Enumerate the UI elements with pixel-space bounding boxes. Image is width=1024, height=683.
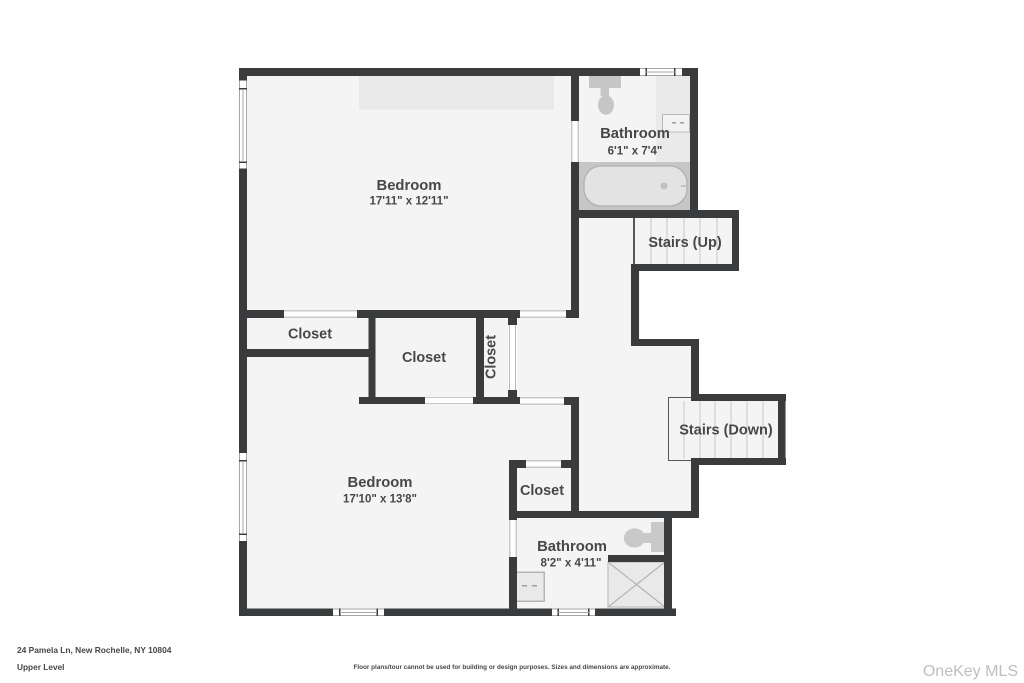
svg-text:OneKey MLS: OneKey MLS	[923, 663, 1018, 680]
svg-text:Floor plans/tour cannot be use: Floor plans/tour cannot be used for buil…	[354, 664, 671, 671]
svg-text:17'11" x 12'11": 17'11" x 12'11"	[369, 196, 448, 208]
svg-text:Bedroom: Bedroom	[348, 475, 413, 491]
svg-text:Upper Level: Upper Level	[17, 662, 65, 672]
svg-text:Stairs (Up): Stairs (Up)	[648, 235, 721, 251]
svg-text:Stairs (Down): Stairs (Down)	[679, 423, 773, 439]
svg-text:24 Pamela Ln, New Rochelle, NY: 24 Pamela Ln, New Rochelle, NY 10804	[17, 645, 172, 655]
svg-text:Bedroom: Bedroom	[377, 178, 442, 194]
svg-text:6'1" x 7'4": 6'1" x 7'4"	[608, 146, 663, 158]
svg-text:Closet: Closet	[484, 335, 500, 379]
svg-text:Closet: Closet	[402, 350, 446, 366]
svg-text:Closet: Closet	[520, 483, 564, 499]
svg-text:Bathroom: Bathroom	[537, 539, 607, 555]
svg-text:8'2" x 4'11": 8'2" x 4'11"	[541, 557, 602, 570]
svg-text:17'10" x 13'8": 17'10" x 13'8"	[343, 494, 417, 506]
svg-text:Bathroom: Bathroom	[600, 126, 670, 142]
svg-text:Closet: Closet	[288, 327, 332, 343]
